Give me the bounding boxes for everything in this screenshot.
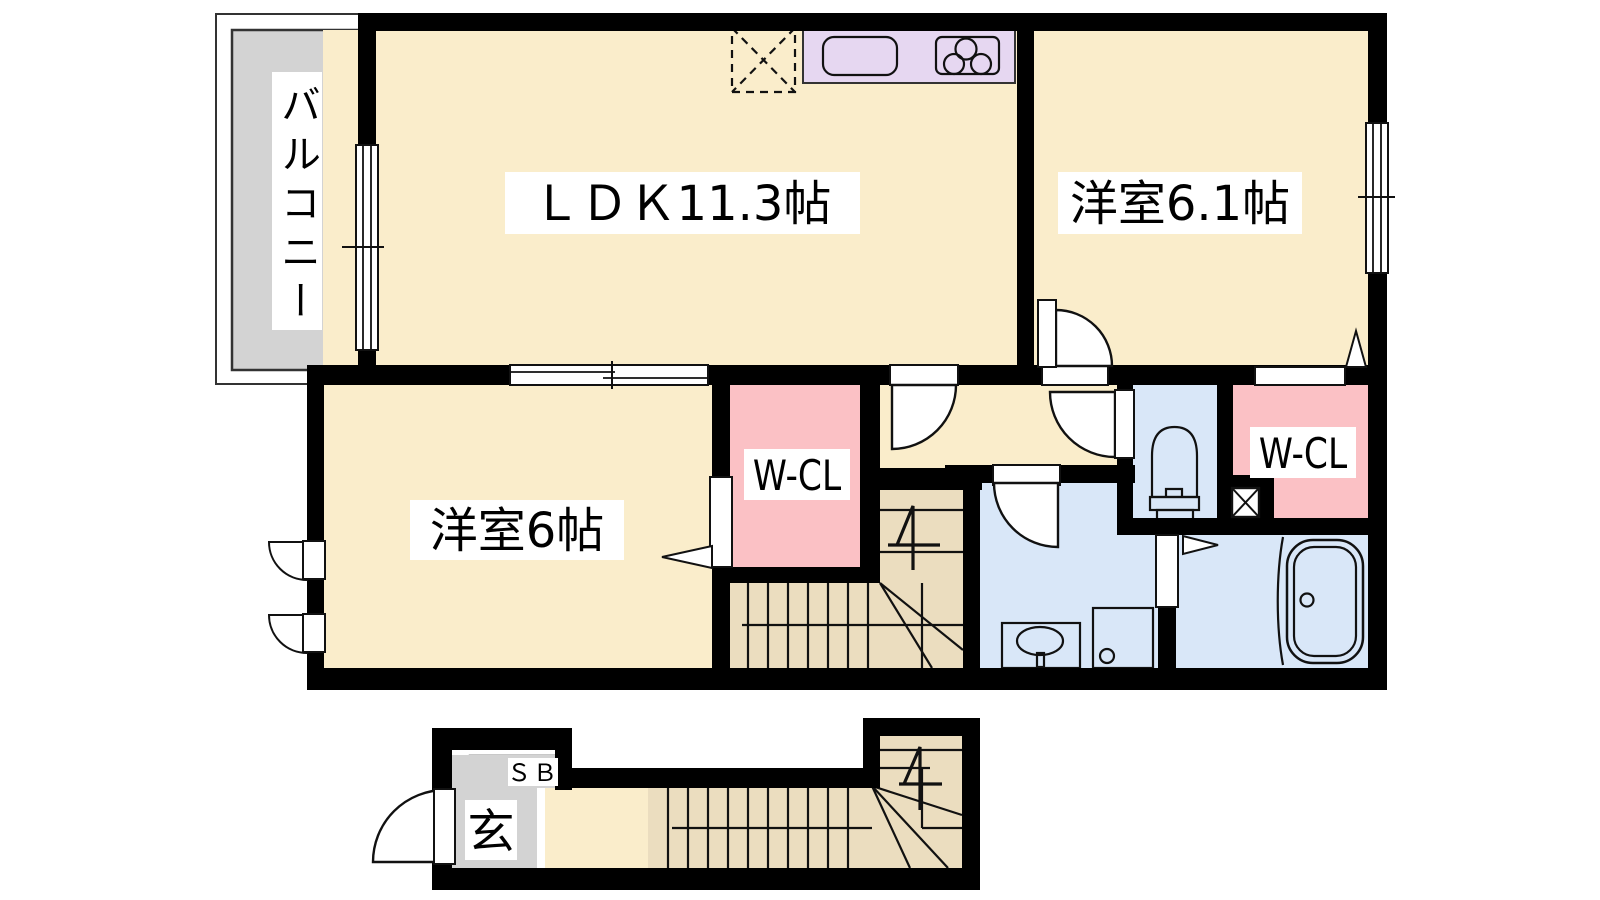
wall-bottom-2f	[307, 668, 1387, 690]
wall-bottom-1f	[432, 868, 980, 890]
wcl-left-label: W-CL	[753, 452, 842, 501]
wall-corridor-top	[555, 768, 880, 788]
ldk-label: ＬＤＫ11.3帖	[533, 176, 832, 232]
western-room-6-label: 洋室6帖	[430, 503, 605, 559]
wall-stairblock-left	[863, 718, 880, 788]
balcony-label: バルコニー	[274, 84, 320, 329]
wall-stairblock-right	[962, 718, 980, 890]
entrance-door-icon	[373, 789, 455, 864]
wall-wcl-left-south	[712, 567, 880, 583]
casement-window-icon	[269, 614, 325, 653]
shoe-box-label: ＳＢ	[507, 759, 559, 787]
bathroom-floor	[1176, 535, 1368, 668]
wall-right	[1368, 13, 1387, 690]
wall-ldk-divider	[1017, 30, 1034, 375]
entrance-label: 玄	[468, 805, 515, 860]
wall-top	[358, 13, 1387, 31]
wall-wet-mid	[1117, 518, 1387, 535]
wcl-right-label: W-CL	[1259, 430, 1348, 479]
western-room-61-label: 洋室6.1帖	[1070, 176, 1290, 232]
casement-window-icon	[269, 541, 325, 580]
floor-plan: バルコニー ＬＤＫ11.3帖 洋室6.1帖 洋室6帖 W-CL W-CL ＳＢ …	[0, 0, 1600, 900]
hall-1f-floor	[545, 788, 648, 868]
wall-stairs-east	[963, 468, 980, 690]
entrance-step	[537, 788, 545, 868]
pipe-space-x-icon	[1232, 488, 1259, 517]
ldk-room-sliding-door-icon	[510, 361, 708, 389]
wall-entrance-top	[432, 728, 572, 750]
